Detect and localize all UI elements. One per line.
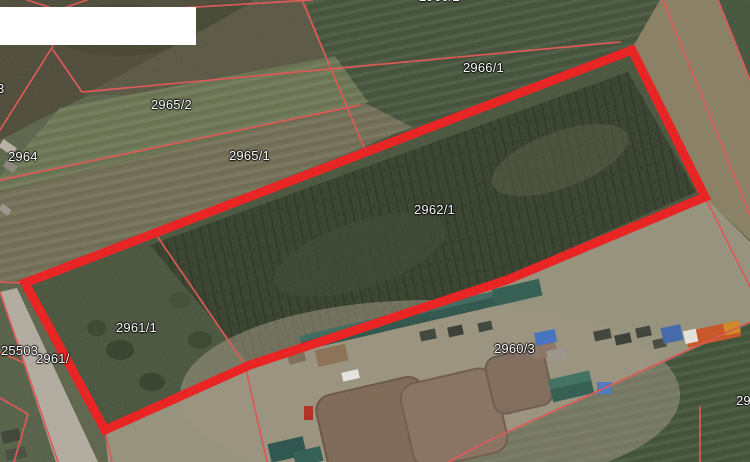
- cadastral-satellite-map[interactable]: 2966/2 2966/1 2965/2 3 2964 2965/1 2962/…: [0, 0, 750, 462]
- image-noise-overlay: [0, 0, 750, 462]
- white-cover-overlay: [0, 7, 196, 45]
- satellite-imagery: [0, 0, 750, 462]
